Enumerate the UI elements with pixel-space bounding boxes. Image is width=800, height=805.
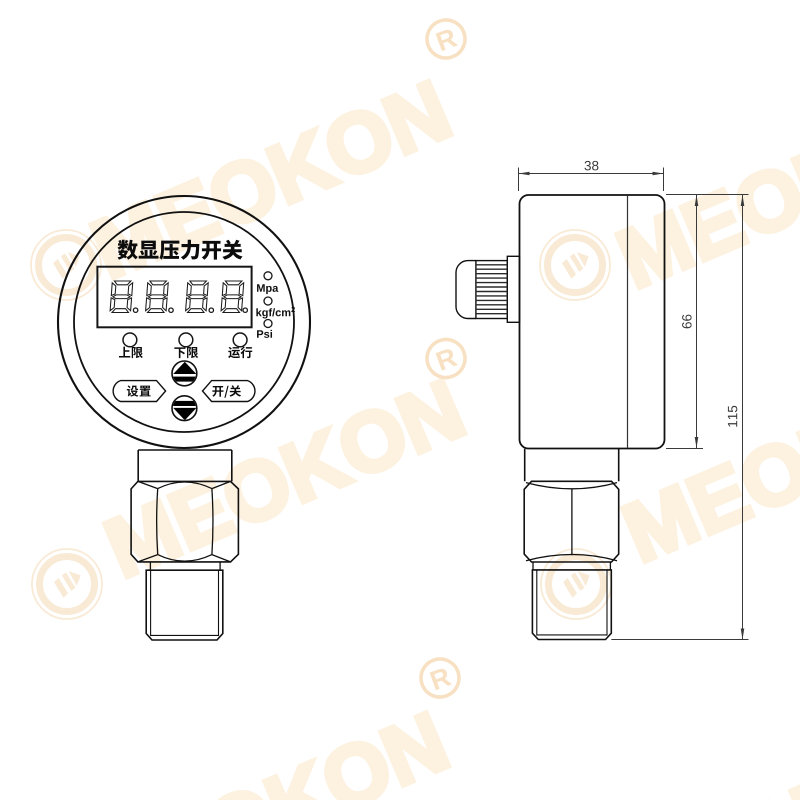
svg-text:MEOKON: MEOKON — [605, 72, 800, 306]
svg-text:MEOKON: MEOKON — [76, 694, 461, 800]
svg-text:MEOKON: MEOKON — [602, 704, 800, 800]
svg-text:R: R — [426, 662, 455, 697]
svg-text:MEOKON: MEOKON — [610, 346, 800, 580]
svg-text:R: R — [432, 23, 461, 58]
svg-text:MEOKON: MEOKON — [79, 62, 464, 296]
